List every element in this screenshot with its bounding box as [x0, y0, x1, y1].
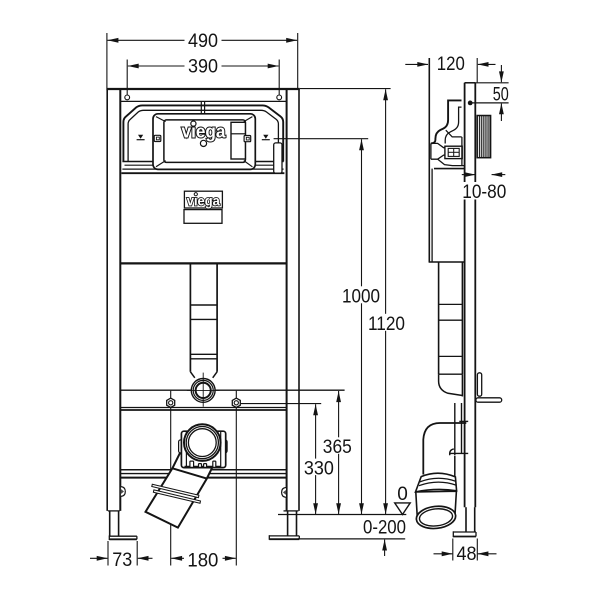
svg-text:1000: 1000: [342, 287, 380, 308]
svg-text:365: 365: [323, 437, 352, 458]
svg-text:1120: 1120: [368, 314, 405, 335]
svg-text:490: 490: [188, 31, 218, 52]
svg-text:vıega: vıega: [182, 121, 227, 142]
svg-text:vıega: vıega: [187, 194, 220, 209]
svg-text:0: 0: [397, 484, 408, 505]
svg-text:120: 120: [437, 54, 465, 75]
svg-text:10-80: 10-80: [462, 182, 506, 203]
svg-text:390: 390: [188, 57, 218, 78]
svg-text:0-200: 0-200: [363, 518, 406, 539]
svg-text:50: 50: [493, 85, 509, 106]
svg-text:48: 48: [457, 544, 477, 565]
svg-text:180: 180: [187, 551, 218, 572]
svg-text:330: 330: [304, 459, 334, 480]
svg-text:73: 73: [112, 550, 132, 571]
